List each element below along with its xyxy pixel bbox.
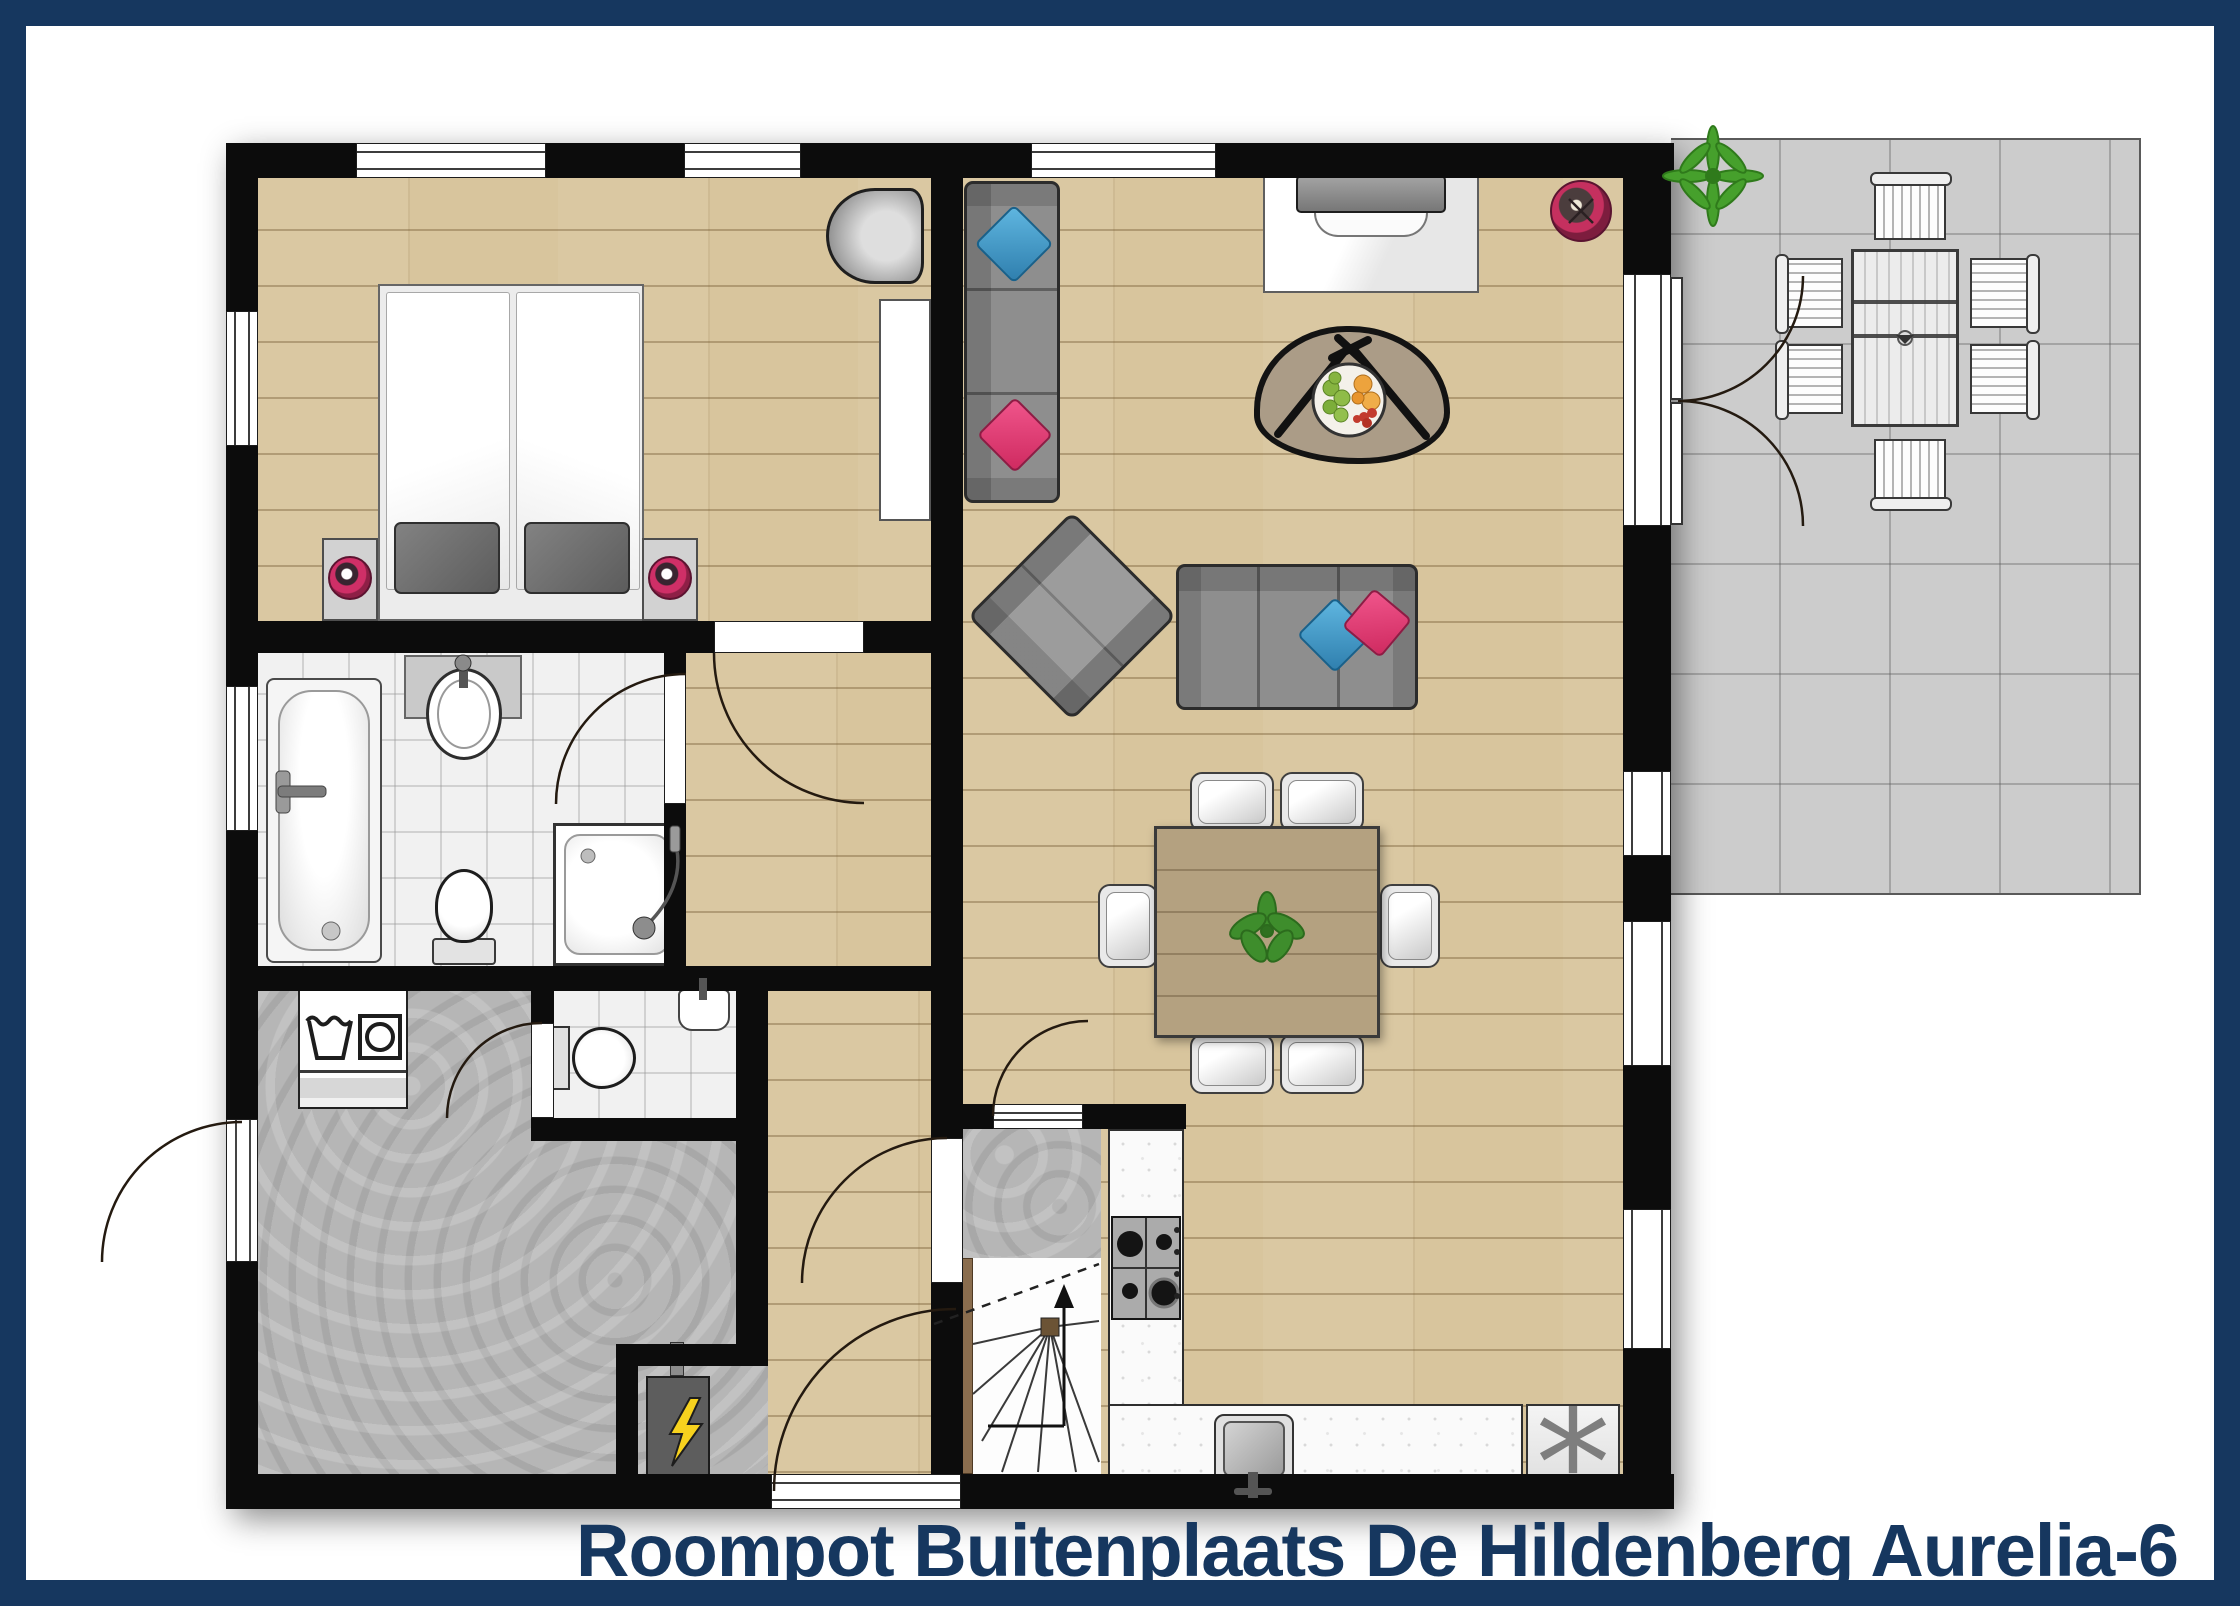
laundry-tub-icon xyxy=(307,1018,351,1059)
shower-rail xyxy=(670,826,680,852)
plan-detail-overlay xyxy=(26,26,2240,1606)
tub-drain xyxy=(322,922,340,940)
plant-icon xyxy=(1226,892,1308,966)
door-swing-arc xyxy=(102,276,1803,1491)
arrow-head xyxy=(1054,1284,1074,1308)
plan-title: Roompot Buitenplaats De Hildenberg Aurel… xyxy=(576,1508,2178,1593)
lightning-bolt-icon xyxy=(670,1398,702,1466)
fruit-bowl-icon xyxy=(1313,364,1385,436)
washing-machine-icon xyxy=(360,1016,400,1058)
floor-plan-page: * xyxy=(0,0,2240,1606)
stairs-newel xyxy=(1041,1318,1059,1336)
stairs-cut-line xyxy=(934,1264,1099,1324)
plant-icon xyxy=(1663,126,1763,226)
wc-basin-tap xyxy=(699,978,707,1000)
gas-stove-burners xyxy=(1117,1227,1180,1307)
shower-head xyxy=(633,917,655,939)
tub-spout xyxy=(278,786,326,797)
shower-drain xyxy=(581,849,595,863)
stairs-icon xyxy=(973,1321,1099,1472)
basin-tap-knob xyxy=(455,655,471,671)
robot-vacuum-detail xyxy=(1569,199,1593,223)
kitchen-faucet-handle xyxy=(1234,1488,1272,1495)
